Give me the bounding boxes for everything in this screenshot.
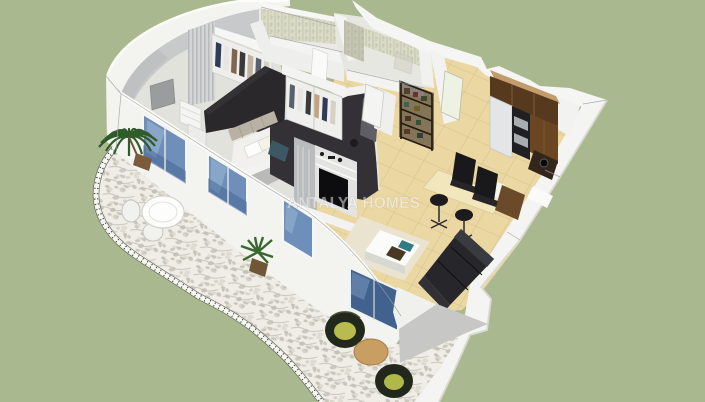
svg-text:ANTALYA HOMES: ANTALYA HOMES	[287, 195, 420, 212]
